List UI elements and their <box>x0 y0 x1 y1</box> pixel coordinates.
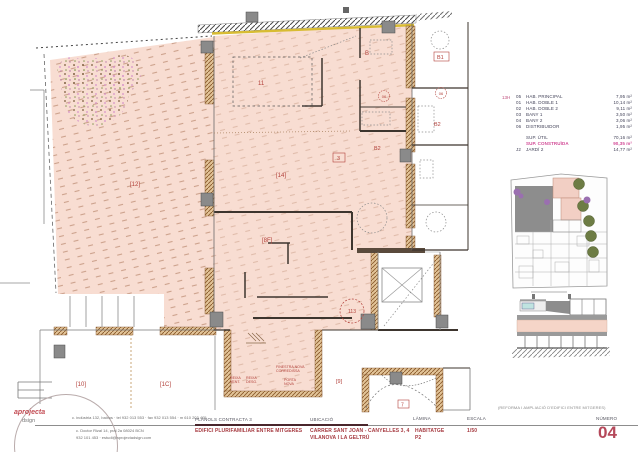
drawing-sheet: [12] 11 B B1 06 06 B2 B2 3 [14] [8F] [10… <box>0 0 640 452</box>
stamp-sub: dsign <box>22 418 35 424</box>
room-label-06b: 06 <box>439 91 444 96</box>
section-highlight-floor <box>517 320 607 332</box>
stamp-brand: aprojecta <box>14 409 45 416</box>
room-code: J2 <box>516 147 526 153</box>
field-ubicacio-value-2: VILANOVA I LA GELTRÚ <box>310 435 370 441</box>
stair-steps <box>70 296 134 327</box>
field-escala-label: ESCALA <box>467 416 486 421</box>
level-marker-113: 113 <box>348 309 356 315</box>
room-label-garden: [12] <box>130 182 140 188</box>
garden-area <box>36 36 214 331</box>
total-name: JARDÍ 2 <box>526 147 604 153</box>
plan-canvas: [12] 11 B B1 06 06 B2 B2 3 [14] [8F] [10… <box>0 0 640 452</box>
room-label-06a: 06 <box>382 94 387 99</box>
architect-address-2: c. Doctor Rizal 14, pral 2a 08024 BCN <box>76 428 144 433</box>
field-ubicacio-label: UBICACIÓ <box>310 417 333 422</box>
field-lamina-value-1: HABITATGE <box>415 428 444 434</box>
field-numero-label: NÚMERO <box>596 416 617 421</box>
room-code: 06 <box>516 124 526 130</box>
section-drawing <box>512 294 610 358</box>
room-name: DISTRIBUIDOR <box>526 124 604 130</box>
field-ubicacio-value-1: CARRER SANT JOAN - CANYELLES 3, 4 <box>310 428 409 434</box>
room-label-10: [10] <box>76 382 86 388</box>
room-label-3: 3 <box>337 156 340 162</box>
note-grille1-2: VENT. <box>230 380 240 384</box>
titleblock-bar <box>195 424 368 427</box>
room-label-11: 11 <box>258 81 265 87</box>
room-label-b2b: B2 <box>434 122 441 128</box>
room-label-9: [9] <box>336 379 343 385</box>
field-lamina-label: LÀMINA <box>413 416 431 421</box>
room-area: 1,95 m² <box>604 124 632 130</box>
schedule-total-row: J2JARDÍ 214,77 m² <box>516 147 632 153</box>
note-door-2: NOVA <box>284 382 295 386</box>
total-area: 14,77 m² <box>604 147 632 153</box>
room-label-8f: [8F] <box>262 238 273 244</box>
field-lamina-value-2: P2 <box>415 435 421 441</box>
sheet-number: 04 <box>598 423 617 443</box>
key-plan <box>511 174 607 292</box>
room-label-7: 7 <box>401 403 404 409</box>
room-label-b1: B1 <box>437 55 444 61</box>
field-escala-value: 1/50 <box>467 428 477 434</box>
room-label-1c: [1C] <box>160 382 171 388</box>
room-label-14: [14] <box>276 173 286 179</box>
architect-address-3: 932 101 453 · estudi@aprojectadsign.com <box>76 435 151 440</box>
field-planols-label: PLÀNOLS CONTRACTA 3 <box>195 417 252 422</box>
field-planols-value: EDIFICI PLURIFAMILIAR ENTRE MITGERES <box>195 428 302 434</box>
key-plan-roof <box>515 186 553 232</box>
project-note: (REFORMA I AMPLIACIÓ D'EDIFICI ENTRE MIT… <box>498 405 606 410</box>
section-window <box>522 303 534 309</box>
schedule-row: 06DISTRIBUIDOR1,95 m² <box>516 124 632 130</box>
room-label-b2a: B2 <box>374 146 381 152</box>
room-label-b: B <box>365 51 369 57</box>
room-schedule: 05HAB. PRINCIPAL7,95 m² 01HAB. DOBLE 110… <box>516 94 632 153</box>
legend-tag: 13H <box>502 95 510 100</box>
note-window-2: CORREDISSA <box>276 369 300 373</box>
section-ground-hatch <box>512 347 610 358</box>
note-grille2-2: DESG. <box>246 380 257 384</box>
